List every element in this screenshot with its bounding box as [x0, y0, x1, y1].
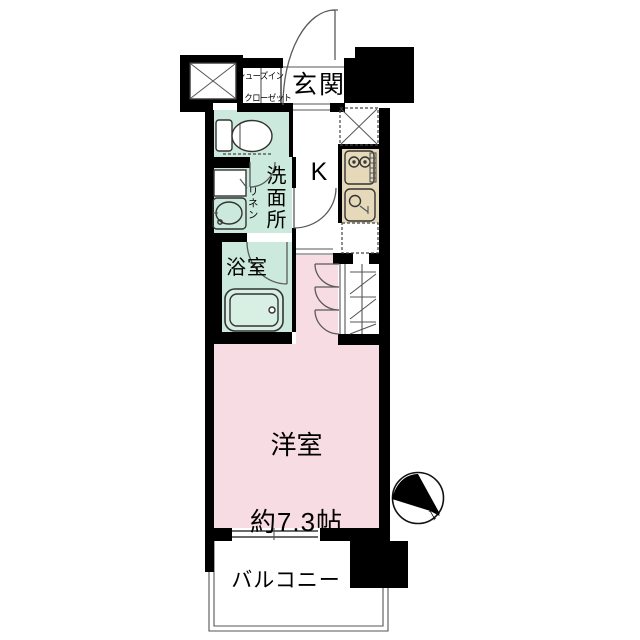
- shoe-closet-label: シューズイン クローゼット: [237, 71, 277, 104]
- closet-hanger-symbol: [350, 264, 376, 334]
- wall-below-toilet: [205, 157, 250, 168]
- wall-washroom-right-lower: [292, 228, 296, 242]
- wall-toilet-right: [289, 110, 293, 157]
- balcony-label: バルコニー: [219, 568, 353, 593]
- washroom-label: 洗面所: [262, 165, 286, 231]
- linen-label: リネン: [246, 186, 259, 221]
- wall-washroom-bath: [205, 233, 247, 242]
- toilet-tank: [216, 120, 232, 151]
- shoe-closet-label-line1: シューズイン: [237, 71, 284, 81]
- wall-top-shoe-closet: [243, 58, 283, 68]
- wall-bath-right: [292, 242, 296, 332]
- bathtub: [225, 289, 283, 331]
- wall-entrance-right-block: [344, 58, 414, 103]
- western-room-entry-floor: [296, 255, 338, 344]
- bathtub-drain: [269, 307, 275, 313]
- wall-washer-counter-divider: [338, 144, 380, 149]
- closet-hanger-slashes: [350, 274, 376, 334]
- western-room-label: 洋室 約7.3帖: [214, 392, 379, 577]
- fridge-placement-box: [342, 223, 378, 253]
- toilet-bowl: [232, 121, 272, 152]
- toilet-fixture: [216, 120, 272, 152]
- shoe-closet-label-line2: クローゼット: [244, 93, 291, 103]
- western-room-size: 約7.3帖: [214, 507, 379, 538]
- wall-closet-top-left: [333, 253, 353, 264]
- wall-washroom-right-upper: [292, 157, 296, 188]
- entrance-label: 玄関: [292, 70, 346, 100]
- wall-right: [379, 108, 390, 541]
- floorplan-canvas: シューズイン クローゼット 玄関 K 洗面所 リネン 浴室 洋室 約7.3帖 バ…: [0, 0, 640, 640]
- closet-shelf-ticks: [350, 272, 376, 322]
- wall-left: [205, 110, 214, 541]
- entrance-door-leaf: [332, 10, 338, 60]
- wall-top-right-block: [355, 47, 414, 60]
- washroom-door-arc: [294, 188, 336, 228]
- wall-closet-bottom: [338, 334, 390, 345]
- linen-shelf: [214, 170, 246, 196]
- wall-below-shoe-closet: [237, 103, 293, 112]
- wall-bath-bottom: [205, 332, 292, 344]
- kitchen-label: K: [299, 157, 339, 187]
- pipe-space: [190, 63, 236, 99]
- bathroom-label: 浴室: [226, 256, 268, 280]
- wall-bath-left: [214, 242, 222, 332]
- western-room-name: 洋室: [214, 430, 379, 461]
- wall-closet-top-right: [369, 253, 390, 264]
- wall-balcony-left-stub: [205, 541, 214, 572]
